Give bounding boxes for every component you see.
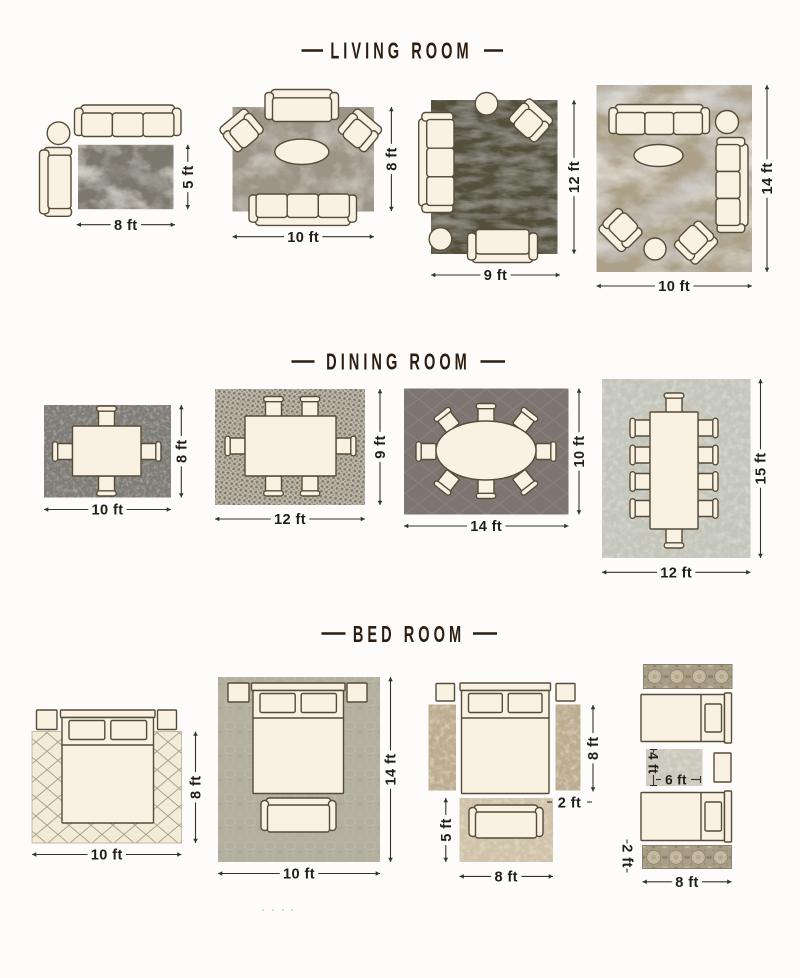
svg-text:8 ft: 8 ft bbox=[385, 147, 401, 171]
svg-text:10 ft: 10 ft bbox=[572, 435, 588, 467]
svg-text:14 ft: 14 ft bbox=[470, 519, 502, 535]
svg-text:5 ft: 5 ft bbox=[439, 818, 455, 842]
svg-text:LIVING ROOM: LIVING ROOM bbox=[330, 38, 472, 64]
svg-text:BED ROOM: BED ROOM bbox=[353, 621, 465, 647]
svg-text:4 ft: 4 ft bbox=[646, 752, 661, 774]
svg-text:DINING ROOM: DINING ROOM bbox=[326, 349, 471, 375]
svg-text:12 ft: 12 ft bbox=[567, 161, 583, 193]
svg-text:5 ft: 5 ft bbox=[181, 165, 197, 189]
svg-text:8 ft: 8 ft bbox=[675, 875, 699, 891]
svg-text:10 ft: 10 ft bbox=[658, 279, 690, 295]
svg-text:12 ft: 12 ft bbox=[274, 512, 306, 528]
svg-text:8 ft: 8 ft bbox=[189, 775, 205, 799]
svg-text:10 ft: 10 ft bbox=[91, 503, 123, 519]
svg-text:8 ft: 8 ft bbox=[494, 870, 518, 886]
svg-text:8 ft: 8 ft bbox=[175, 439, 191, 463]
svg-text:10 ft: 10 ft bbox=[287, 230, 319, 246]
svg-text:14 ft: 14 ft bbox=[384, 753, 400, 785]
svg-text:8 ft: 8 ft bbox=[114, 218, 138, 234]
svg-text:2 ft: 2 ft bbox=[558, 795, 582, 811]
svg-text:2 ft: 2 ft bbox=[619, 844, 635, 868]
svg-text:14 ft: 14 ft bbox=[760, 162, 776, 194]
svg-text:15 ft: 15 ft bbox=[754, 452, 770, 484]
svg-text:8 ft: 8 ft bbox=[586, 736, 602, 760]
svg-text:9 ft: 9 ft bbox=[373, 435, 389, 459]
svg-text:10 ft: 10 ft bbox=[283, 867, 315, 883]
svg-text:10 ft: 10 ft bbox=[91, 848, 123, 864]
svg-text:12 ft: 12 ft bbox=[660, 566, 692, 582]
svg-text:9 ft: 9 ft bbox=[484, 268, 508, 284]
svg-text:6 ft: 6 ft bbox=[665, 772, 687, 787]
